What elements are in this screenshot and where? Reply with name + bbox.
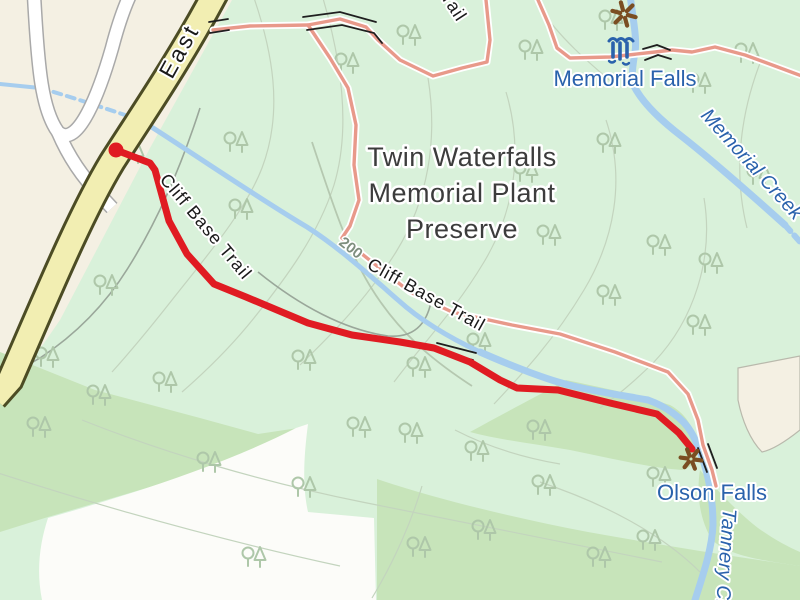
route-start-marker[interactable] [109, 143, 124, 158]
olson-falls-label[interactable]: Olson Falls [657, 480, 767, 505]
preserve-title-line3: Preserve [406, 214, 518, 244]
memorial-falls-label[interactable]: Memorial Falls [553, 66, 696, 91]
preserve-title-line2: Memorial Plant [368, 178, 555, 208]
trail-map[interactable]: East Trail Twin Waterfalls Memorial Plan… [0, 0, 800, 600]
preserve-title-line1: Twin Waterfalls [367, 142, 557, 172]
